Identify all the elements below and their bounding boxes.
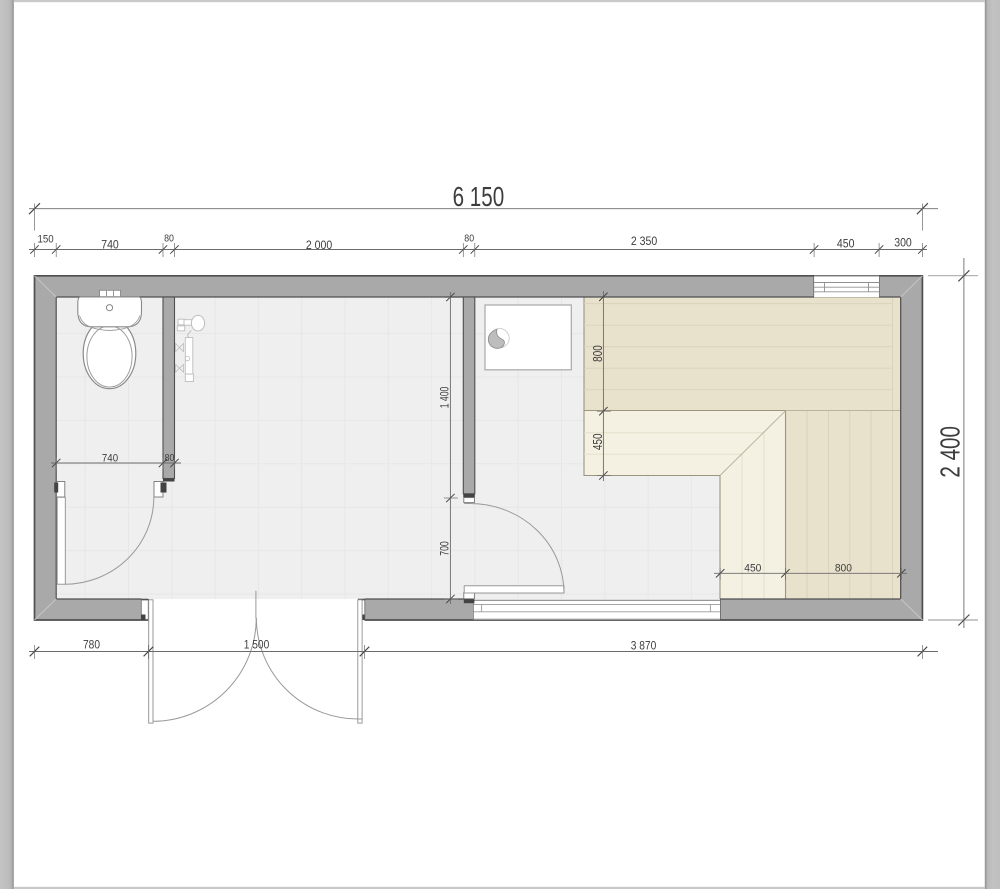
- svg-text:80: 80: [464, 233, 474, 244]
- svg-text:300: 300: [894, 237, 912, 250]
- svg-text:2 400: 2 400: [936, 426, 967, 478]
- svg-text:2 000: 2 000: [306, 239, 332, 252]
- svg-text:780: 780: [83, 639, 100, 652]
- svg-text:450: 450: [837, 238, 855, 251]
- svg-text:1 500: 1 500: [244, 639, 270, 652]
- svg-text:740: 740: [101, 239, 119, 252]
- svg-text:740: 740: [102, 453, 118, 465]
- svg-text:700: 700: [439, 541, 452, 556]
- svg-text:3 870: 3 870: [631, 640, 657, 653]
- svg-text:6 150: 6 150: [453, 182, 505, 213]
- svg-text:450: 450: [592, 433, 605, 450]
- svg-text:150: 150: [37, 234, 53, 246]
- svg-text:800: 800: [835, 562, 852, 574]
- svg-text:80: 80: [165, 453, 175, 464]
- svg-text:2 350: 2 350: [631, 235, 657, 248]
- svg-text:80: 80: [164, 233, 174, 244]
- svg-text:800: 800: [592, 345, 605, 362]
- svg-text:1 400: 1 400: [439, 387, 452, 409]
- svg-text:450: 450: [744, 562, 761, 574]
